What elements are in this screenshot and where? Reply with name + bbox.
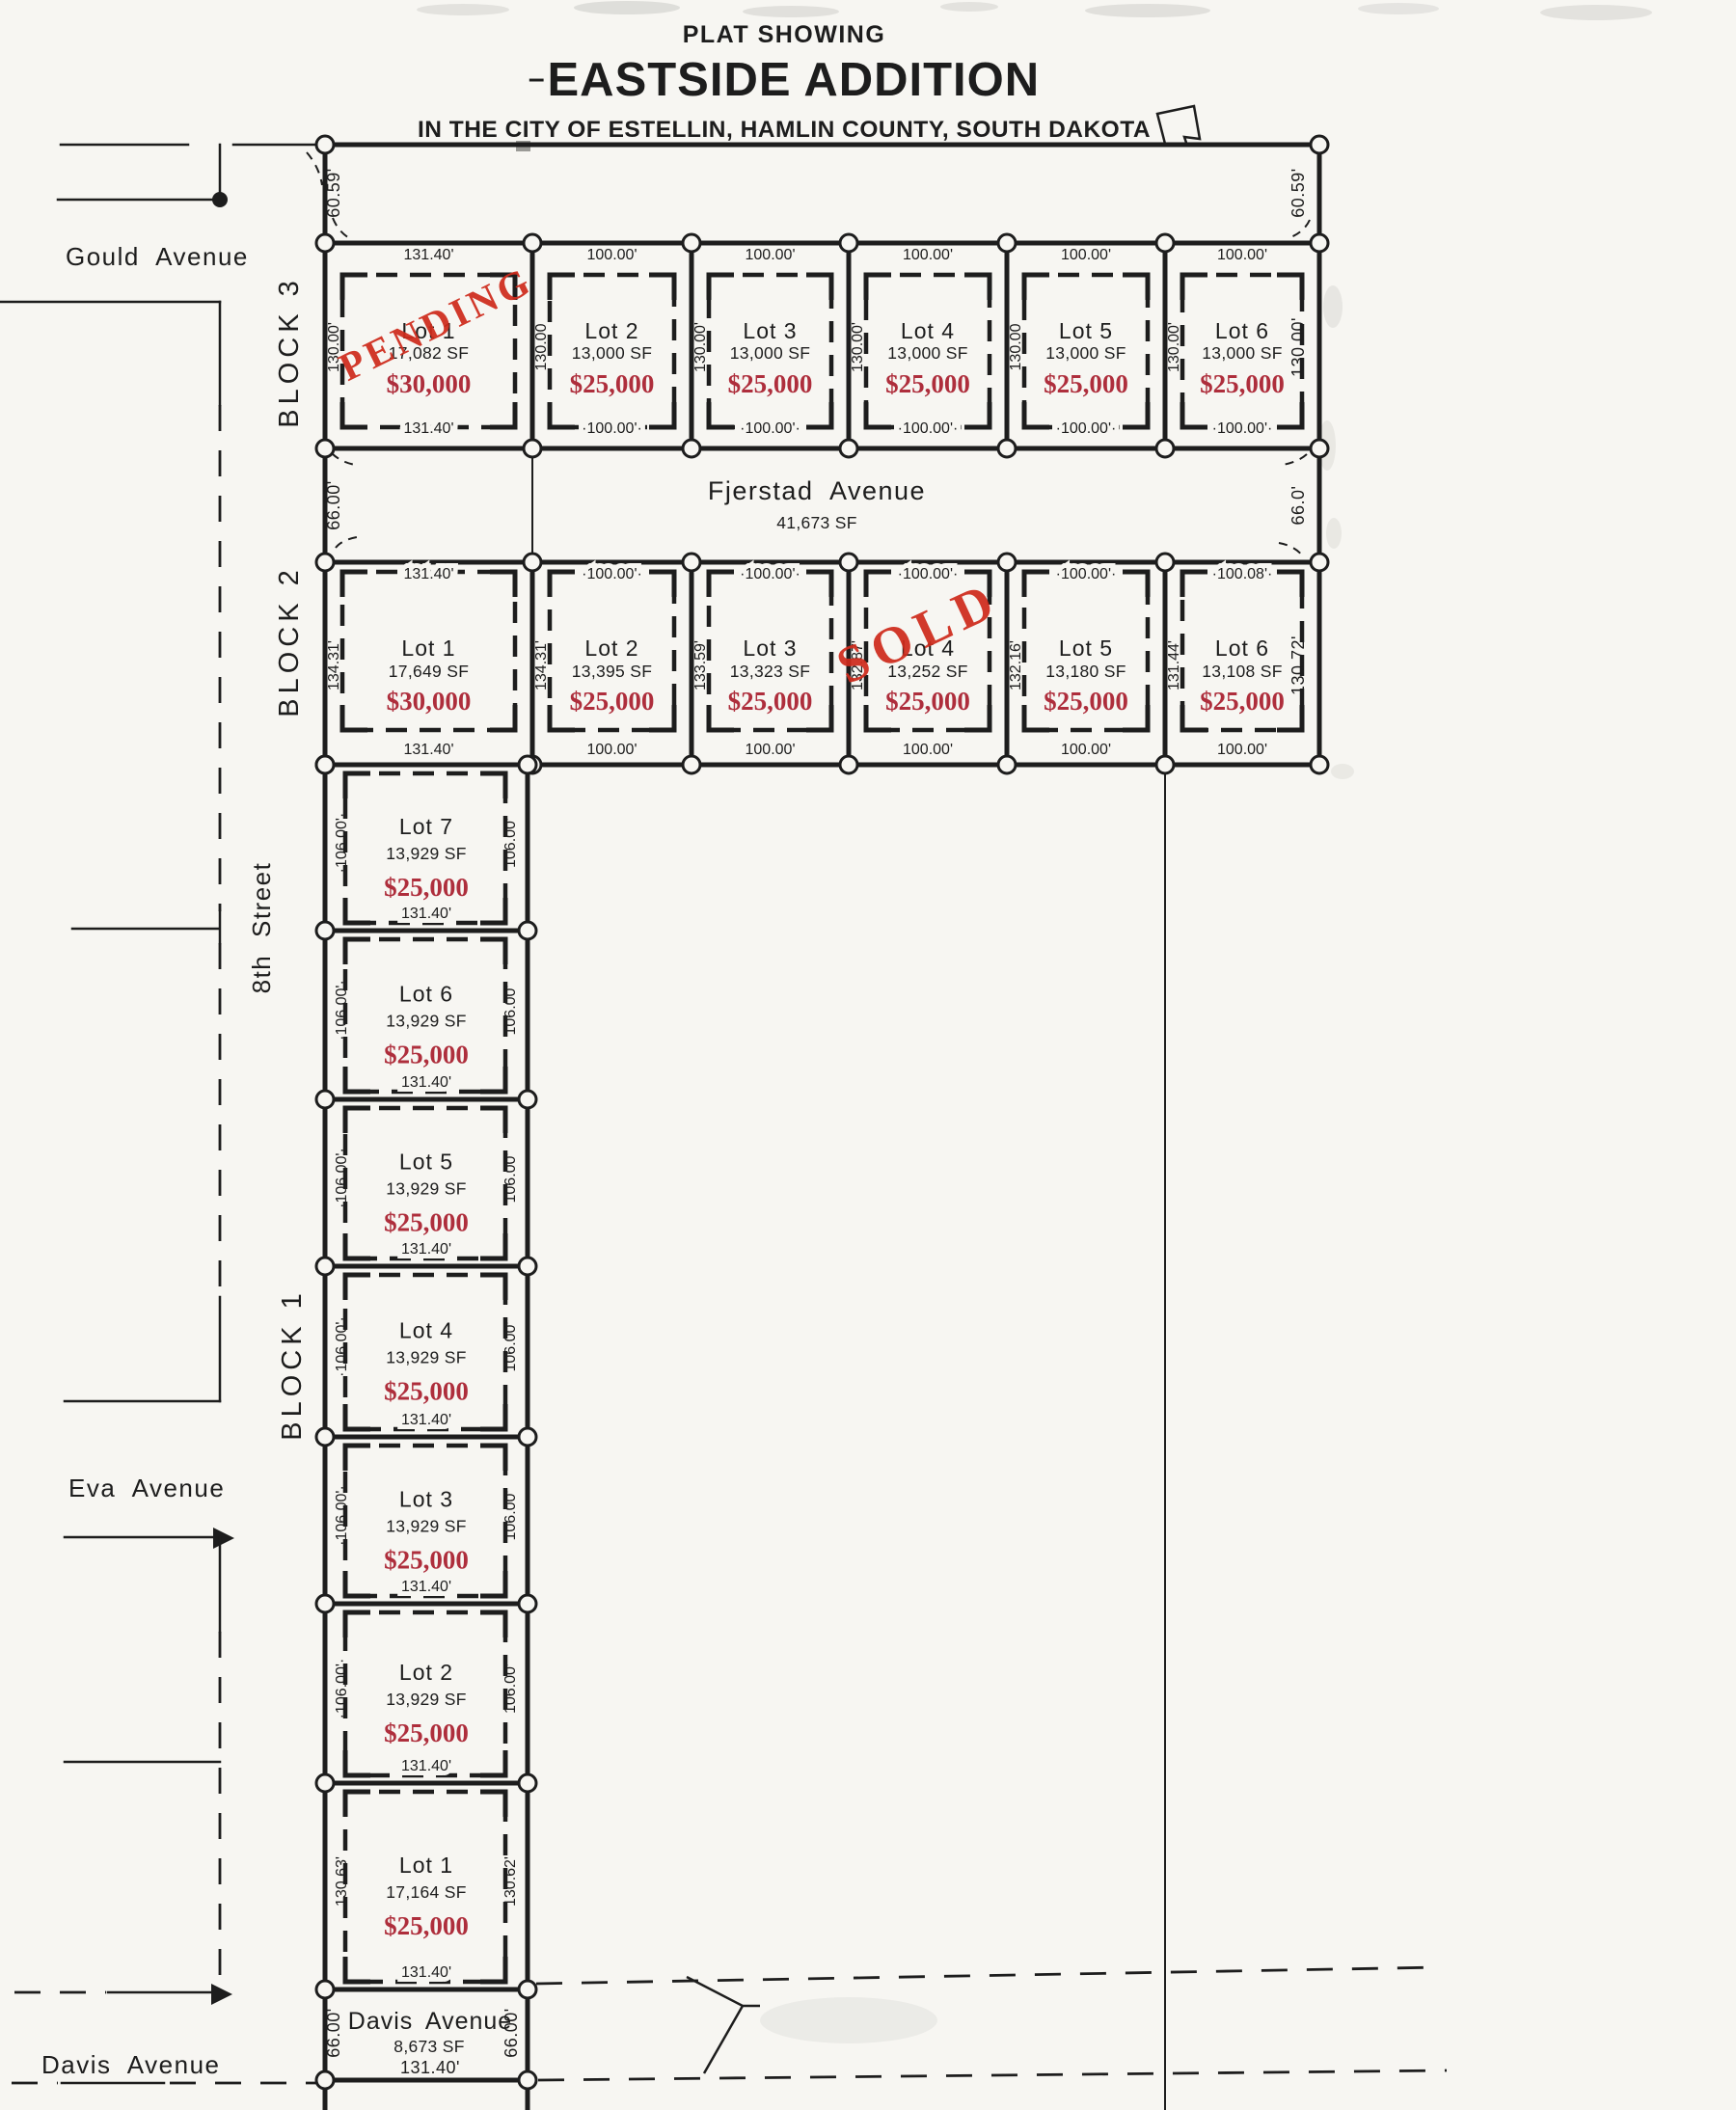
dim-label: ·100.00'· <box>582 420 642 437</box>
lot-name-label: Lot 1 <box>399 1853 453 1878</box>
dim-label: 100.00' <box>1061 742 1111 758</box>
dim-label: 134.31' <box>533 640 550 690</box>
lot-price-label: $25,000 <box>384 873 469 902</box>
dim-label: 100.00' <box>903 742 953 758</box>
arrow-marker <box>213 1528 234 1549</box>
lot-area-label: 13,000 SF <box>887 343 967 363</box>
plat-drawing: 131.40'131.40'Lot 117,082 SF$30,000130.0… <box>0 0 1736 2110</box>
davis-row-dim-left: 66.00' <box>324 2008 343 2057</box>
lot-name-label: Lot 2 <box>584 636 638 661</box>
davis-avenue-extension-lines <box>536 765 1447 2110</box>
dim-label: ·106.00'· <box>334 980 350 1041</box>
lot-price-label: $30,000 <box>387 687 472 716</box>
dim-label: 106.00' <box>502 818 519 868</box>
lot-name-label: Lot 6 <box>399 982 453 1007</box>
dim-label: 100.00' <box>903 247 953 263</box>
eva-avenue-label: Eva Avenue <box>68 1474 225 1502</box>
lot-name-label: Lot 5 <box>399 1150 453 1175</box>
dim-label: 134.31' <box>326 640 342 690</box>
lot-price-label: $30,000 <box>387 369 472 398</box>
fjerstad-dim-left: 66.00' <box>324 480 343 529</box>
eighth-street-label: 8th Street <box>247 862 276 994</box>
dim-label: 100.00' <box>587 742 637 758</box>
dim-label: 100.00' <box>1217 247 1267 263</box>
lot-price-label: $25,000 <box>384 1911 469 1940</box>
dim-label: 133.59' <box>692 640 709 690</box>
dim-label: 131.40' <box>404 420 454 437</box>
dim-label: ·106.00'· <box>334 1485 350 1546</box>
lot-name-label: Lot 1 <box>401 636 455 661</box>
dim-label: 131.40' <box>401 1964 451 1981</box>
dim-label: 131.40' <box>404 742 454 758</box>
lot-price-label: $25,000 <box>384 1208 469 1237</box>
lot-name-label: Lot 4 <box>399 1318 453 1343</box>
lot-price-label: $25,000 <box>1200 369 1285 398</box>
lot-area-label: 13,929 SF <box>386 1179 466 1199</box>
dim-label: 106.00' <box>502 1491 519 1541</box>
dim-label: ·100.00'· <box>1056 566 1117 582</box>
lot-area-label: 13,929 SF <box>386 1348 466 1367</box>
lot-name-label: Lot 2 <box>399 1660 453 1685</box>
lot-price-label: $25,000 <box>384 1377 469 1406</box>
dim-label: 131.44' <box>1166 640 1182 690</box>
fjerstad-area-label: 41,673 SF <box>776 513 856 532</box>
fjerstad-dim-right: 66.0' <box>1288 486 1308 526</box>
dim-label: 131.40' <box>401 1074 451 1091</box>
lot-name-label: Lot 7 <box>399 814 453 839</box>
davis-row-dim-bottom: 131.40' <box>400 2058 460 2077</box>
lot-name-label: Lot 4 <box>901 318 955 343</box>
lot-name-label: Lot 3 <box>399 1487 453 1512</box>
lot-price-label: $25,000 <box>1200 687 1285 716</box>
dim-label: 130.63' <box>334 1856 350 1907</box>
davis-avenue-label: Davis Avenue <box>41 2050 221 2079</box>
lot-price-label: $25,000 <box>384 1041 469 1069</box>
lot-boundary-lines <box>325 145 1319 2110</box>
dim-label: 132.16' <box>1008 640 1024 690</box>
dim-label: ·106.00'· <box>334 1148 350 1208</box>
dim-label: 130.00' <box>1166 322 1182 372</box>
davis-row-dim-right: 66.00' <box>502 2008 521 2057</box>
static-labels: Gould Avenue 8th Street Eva Avenue Davis… <box>41 168 1308 2079</box>
lot-area-label: 13,000 SF <box>1202 343 1282 363</box>
dim-label: 130.62' <box>502 1856 519 1907</box>
offset-dim-right: 60.59' <box>1288 168 1308 217</box>
lot-area-label: 13,323 SF <box>730 662 810 681</box>
lot-price-label: $25,000 <box>728 369 813 398</box>
davis-row-label: Davis Avenue <box>348 2008 512 2035</box>
scan-artifacts <box>417 1 1652 2043</box>
lot-price-label: $25,000 <box>570 687 655 716</box>
dim-label: 130.00 <box>1008 323 1024 370</box>
block2-label: BLOCK 2 <box>274 565 305 717</box>
davis-row-area: 8,673 SF <box>393 2037 464 2056</box>
dim-label: 131.40' <box>401 1758 451 1774</box>
arrow-marker <box>211 1984 232 2005</box>
fjerstad-avenue-label: Fjerstad Avenue <box>708 476 926 505</box>
lot-area-label: 13,395 SF <box>572 662 652 681</box>
dim-label: 106.00' <box>502 1664 519 1714</box>
dim-label: ·106.00'· <box>334 813 350 874</box>
lot-name-label: Lot 6 <box>1215 318 1269 343</box>
lot-area-label: 13,929 SF <box>386 1517 466 1536</box>
dim-label: ·100.00'· <box>582 566 642 582</box>
lot-area-label: 13,000 SF <box>730 343 810 363</box>
gould-avenue-label: Gould Avenue <box>66 242 249 271</box>
leader-bracket <box>687 1977 760 2073</box>
dim-label: 131.40' <box>401 1412 451 1428</box>
block3-right-dim: 130.00' <box>1288 317 1308 377</box>
lot-name-label: Lot 6 <box>1215 636 1269 661</box>
dim-label: 100.00' <box>746 247 796 263</box>
dim-label: ·100.00'· <box>1212 420 1273 437</box>
dim-label: 130.00 <box>533 323 550 370</box>
lot-area-label: 17,649 SF <box>389 662 469 681</box>
dim-label: 131.40' <box>401 1241 451 1258</box>
lot-name-label: Lot 5 <box>1059 318 1113 343</box>
lot-price-label: $25,000 <box>1044 687 1128 716</box>
lot-area-label: 13,929 SF <box>386 844 466 863</box>
plat-scan-page: PLAT SHOWING –EASTSIDE ADDITION IN THE C… <box>0 0 1736 2110</box>
dim-label: 131.40' <box>404 566 454 582</box>
lot-area-label: 13,000 SF <box>1045 343 1126 363</box>
lot-name-label: Lot 3 <box>743 318 797 343</box>
lot-area-label: 13,929 SF <box>386 1690 466 1709</box>
lot-price-label: $25,000 <box>728 687 813 716</box>
lot-price-label: $25,000 <box>1044 369 1128 398</box>
lot-area-label: 13,929 SF <box>386 1012 466 1031</box>
dim-label: 100.00' <box>587 247 637 263</box>
dim-label: ·100.00'· <box>740 420 800 437</box>
block3-label: BLOCK 3 <box>274 276 305 428</box>
dim-label: 100.00' <box>1217 742 1267 758</box>
dim-label: ·100.00'· <box>898 420 959 437</box>
monument-dot <box>212 192 228 207</box>
dim-label: 100.00' <box>746 742 796 758</box>
dim-label: ·100.00'· <box>898 566 959 582</box>
dim-label: 106.00' <box>502 1153 519 1204</box>
lot-price-label: $25,000 <box>384 1546 469 1575</box>
dim-label: ·106.00'· <box>334 1316 350 1377</box>
lot-name-label: Lot 2 <box>584 318 638 343</box>
lot-name-label: Lot 5 <box>1059 636 1113 661</box>
dim-label: ·100.00'· <box>1056 420 1117 437</box>
lot-area-label: 13,180 SF <box>1045 662 1126 681</box>
lot-price-label: $25,000 <box>885 369 970 398</box>
generated-lot-labels: 131.40'131.40'Lot 117,082 SF$30,000130.0… <box>326 247 1285 1981</box>
lot-price-label: $25,000 <box>384 1718 469 1747</box>
dim-label: 106.00' <box>502 986 519 1036</box>
dim-label: 131.40' <box>401 906 451 922</box>
dim-label: 100.00' <box>1061 247 1111 263</box>
dim-label: 130.00' <box>692 322 709 372</box>
dim-label: 131.40' <box>401 1579 451 1595</box>
offset-dim-left: 60.59' <box>324 168 343 217</box>
lot-price-label: $25,000 <box>570 369 655 398</box>
dim-label: ·100.00'· <box>740 566 800 582</box>
dim-label: 130.00' <box>850 322 866 372</box>
block1-label: BLOCK 1 <box>277 1288 308 1441</box>
lot-area-label: 13,108 SF <box>1202 662 1282 681</box>
lot-name-label: Lot 3 <box>743 636 797 661</box>
lot-area-label: 13,000 SF <box>572 343 652 363</box>
dim-label: 106.00' <box>502 1322 519 1372</box>
dim-label: ·100.08'· <box>1212 566 1273 582</box>
dim-label: ·106.00'· <box>334 1659 350 1719</box>
block2-right-dim: 130.72' <box>1288 636 1308 695</box>
dim-label: 131.40' <box>404 247 454 263</box>
lot-price-label: $25,000 <box>885 687 970 716</box>
lot-area-label: 17,164 SF <box>386 1882 466 1902</box>
